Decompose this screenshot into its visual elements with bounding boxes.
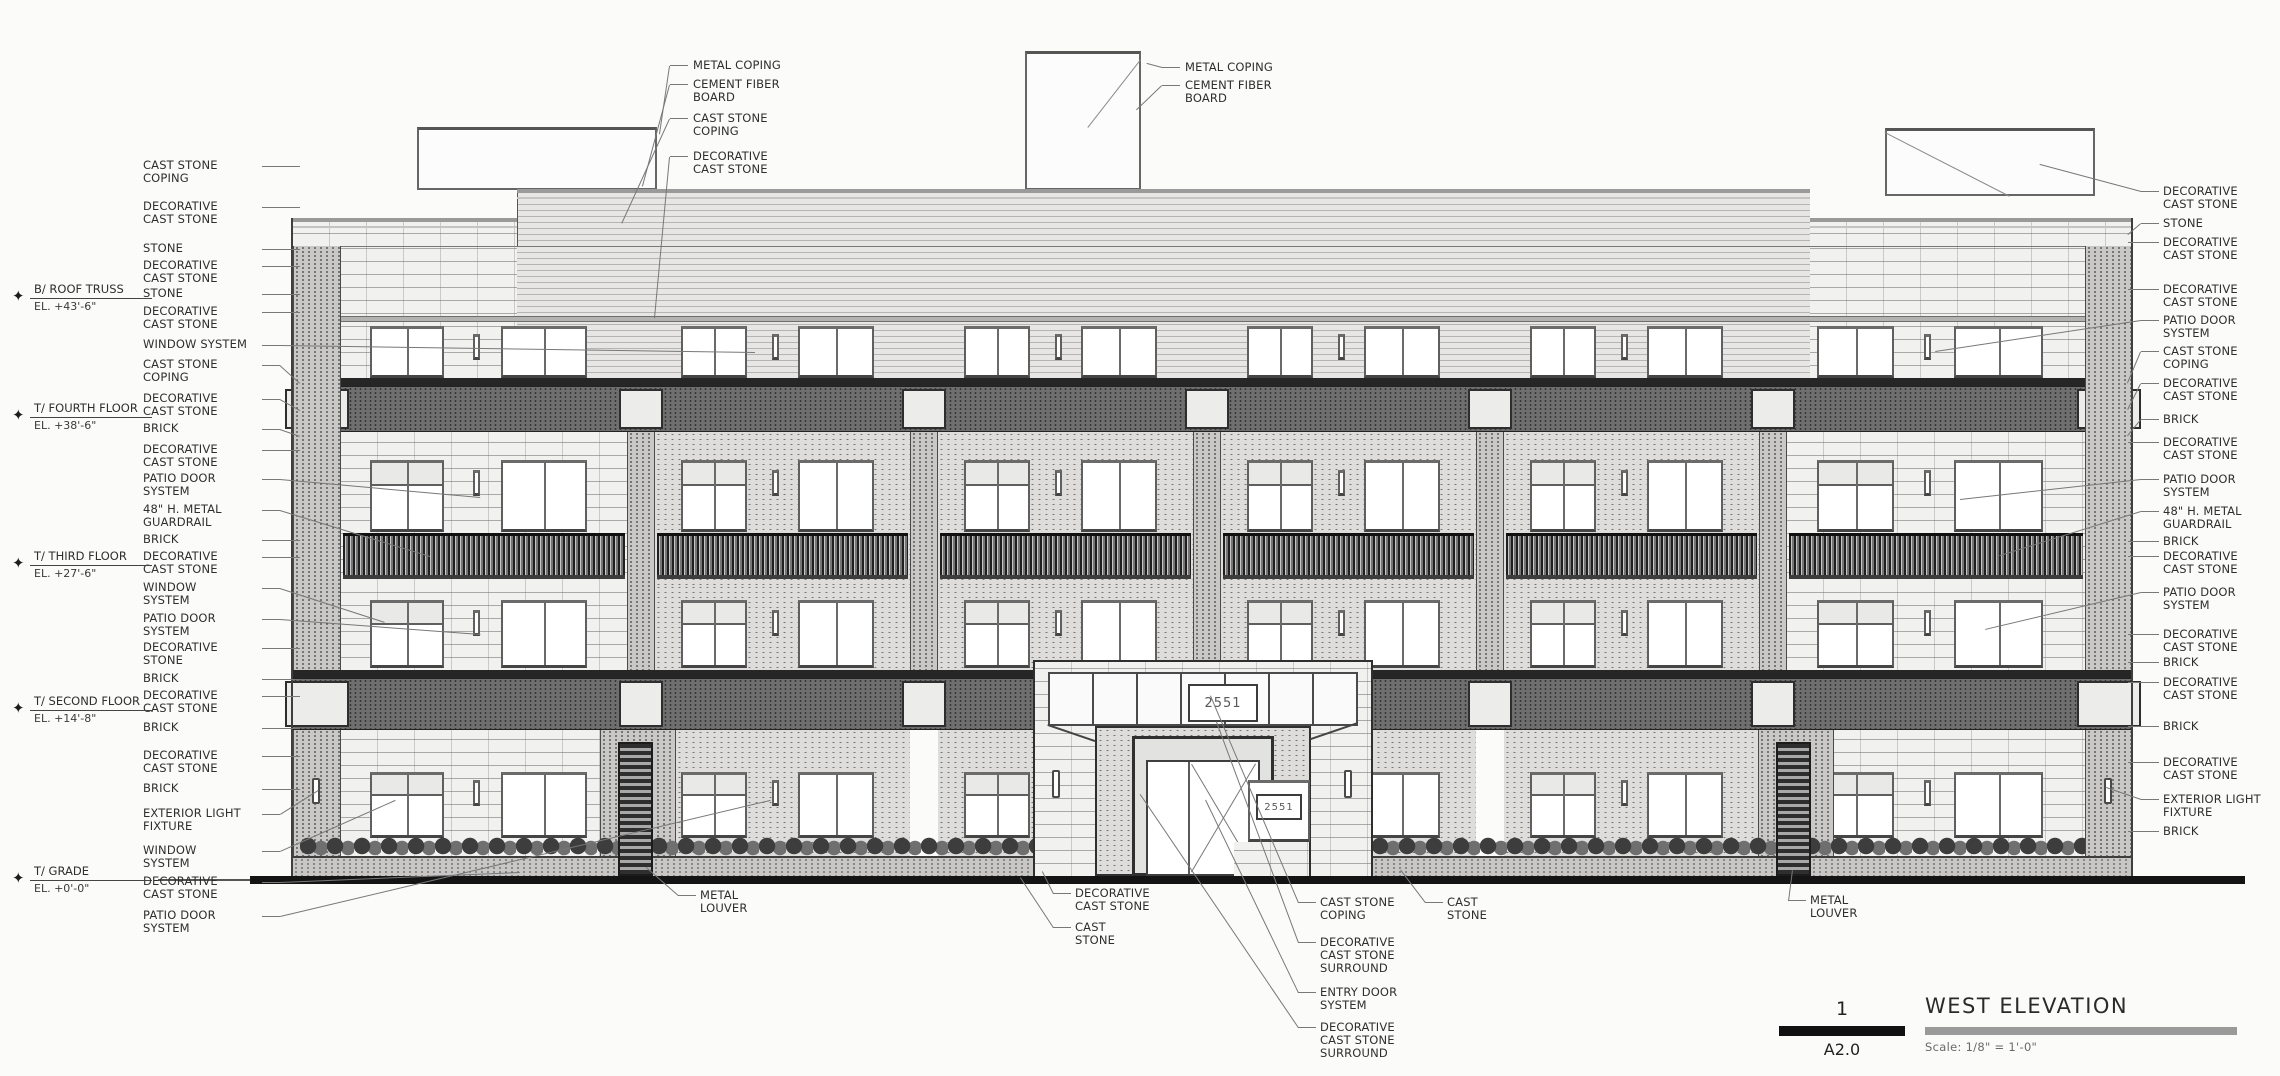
leader-line [2128,662,2141,663]
leader-line [2128,682,2141,683]
callout-label: BRICK [2163,535,2199,548]
callout-label: DECORATIVE CAST STONE [2163,283,2238,309]
elevation-marker-name: B/ ROOF TRUSS [34,283,124,295]
leader-line [262,510,280,511]
window [1364,460,1441,532]
callout-label: DECORATIVE CAST STONE [2163,756,2238,782]
pilaster-block [1468,681,1512,727]
leader-line [2128,831,2141,832]
leader-line [2141,442,2159,443]
callout-label: DECORATIVE CAST STONE [2163,550,2238,576]
leader-line [2141,351,2159,352]
leader-line [280,728,300,729]
shrub-row [300,828,1035,860]
grade-line [250,876,2245,884]
window [1530,600,1596,668]
leader-line [1788,900,1806,901]
roof-truss-line [293,246,2133,247]
drawing-scale: Scale: 1/8" = 1'-0" [1925,1040,2037,1054]
window [798,600,875,668]
leader-line [262,679,280,680]
window [501,600,587,668]
window [1364,600,1441,668]
callout-label: DECORATIVE CAST STONE [143,259,218,285]
window-slit [772,334,779,360]
leader-line [262,648,280,649]
window-slit [1055,470,1062,496]
elevation-marker-elevation: EL. +14'-8" [34,713,96,725]
callout-label: METAL LOUVER [700,889,748,915]
leader-line [1298,902,1316,903]
callout-label: DECORATIVE CAST STONE [2163,236,2238,262]
metal-coping [293,218,517,222]
leader-line [280,312,300,313]
window-slit [1924,610,1931,636]
leader-line [2141,541,2159,542]
callout-label: CEMENT FIBER BOARD [1185,79,1272,105]
window-slit [1621,780,1628,806]
leader-line [280,679,300,680]
leader-line [262,399,280,400]
leader-line [670,118,688,119]
window [1247,326,1313,378]
building-edge [292,218,294,876]
callout-label: PATIO DOOR SYSTEM [143,909,216,935]
window [1081,600,1158,668]
callout-label: PATIO DOOR SYSTEM [143,472,216,498]
metal-guardrail [657,533,908,579]
window-slit [1338,610,1345,636]
leader-line [670,65,688,66]
leader-line [670,84,688,85]
callout-label: CAST STONE COPING [1320,896,1395,922]
window [964,600,1030,668]
leader-line [2141,762,2159,763]
callout-label: DECORATIVE CAST STONE [2163,628,2238,654]
callout-label: DECORATIVE CAST STONE SURROUND [1320,936,1395,975]
window [681,460,747,532]
elevation-marker-icon: ✦ [12,871,25,886]
leader-line [280,696,300,697]
window-slit [1924,334,1931,360]
metal-guardrail [940,533,1191,579]
callout-label: WINDOW SYSTEM [143,844,197,870]
callout-label: 48" H. METAL GUARDRAIL [2163,505,2242,531]
leader-line [2141,419,2159,420]
leader-line [262,345,280,346]
callout-label: BRICK [143,782,179,795]
window [1247,460,1313,532]
elevation-marker-icon: ✦ [12,556,25,571]
leader-line [2128,289,2141,290]
sheet-number: A2.0 [1800,1040,1884,1059]
callout-label: DECORATIVE CAST STONE [143,749,218,775]
pilaster-block [619,389,663,429]
leader-line [280,648,300,649]
exterior-light-fixture [2104,778,2112,804]
cast-stone-coping [293,226,517,228]
leader-line [1162,67,1180,68]
leader-line [2128,556,2141,557]
leader-line [280,166,300,167]
pilaster-block [1751,389,1795,429]
callout-label: DECORATIVE CAST STONE [143,443,218,469]
window-slit [1621,610,1628,636]
leader-line [1425,902,1443,903]
door-mullion [1188,762,1190,874]
elevation-marker-elevation: EL. +38'-6" [34,420,96,432]
window-slit [1621,334,1628,360]
leader-line [262,450,280,451]
title-block-divider [1779,1026,1905,1036]
callout-label: METAL COPING [693,59,781,72]
window-slit [772,780,779,806]
callout-label: CAST STONE COPING [143,159,218,185]
window [1530,326,1596,378]
leader-line [262,540,280,541]
callout-label: BRICK [143,422,179,435]
cast-stone-coping-line [293,378,2133,386]
window [370,326,444,378]
metal-louver [1776,742,1811,876]
window [370,600,444,668]
leader-line [262,294,280,295]
title-underline [1925,1027,2237,1035]
window [1247,600,1313,668]
cast-stone-coping [517,197,1810,199]
window [1817,460,1894,532]
callout-label: EXTERIOR LIGHT FIXTURE [2163,793,2261,819]
leader-line [262,266,280,267]
exterior-light-fixture [1052,770,1060,798]
leader-line [262,312,280,313]
leader-line [280,294,300,295]
pilaster-block [285,681,349,727]
rooftop-structure [1025,51,1141,190]
callout-label: ENTRY DOOR SYSTEM [1320,986,1397,1012]
leader-line [280,540,300,541]
leader-line [1147,63,1162,68]
callout-label: CAST STONE [1075,921,1115,947]
callout-label: CAST STONE [1447,896,1487,922]
window-slit [473,610,480,636]
metal-coping [1810,218,2133,222]
leader-line [2128,762,2141,763]
callout-label: CAST STONE COPING [143,358,218,384]
leader-line [262,696,280,697]
leader-line [280,557,300,558]
leader-line [280,756,300,757]
callout-label: PATIO DOOR SYSTEM [2163,314,2236,340]
callout-label: 48" H. METAL GUARDRAIL [143,503,222,529]
leader-line [262,619,280,620]
callout-label: PATIO DOOR SYSTEM [2163,586,2236,612]
callout-label: DECORATIVE CAST STONE [143,392,218,418]
window [1817,326,1894,378]
pilaster-block [619,681,663,727]
callout-label: DECORATIVE CAST STONE [2163,377,2238,403]
pilaster-block [1751,681,1795,727]
window-slit [772,610,779,636]
window [501,326,587,378]
window-slit [772,470,779,496]
window [1530,460,1596,532]
callout-label: BRICK [2163,825,2199,838]
window [1364,326,1441,378]
leader-line [262,814,280,815]
window [1954,326,2043,378]
window [1817,600,1894,668]
elevation-marker-name: T/ SECOND FLOOR [34,695,140,707]
leader-line [262,851,280,852]
window-slit [1924,470,1931,496]
callout-label: BRICK [143,721,179,734]
callout-label: DECORATIVE CAST STONE [2163,436,2238,462]
elevation-marker-name: T/ THIRD FLOOR [34,550,127,562]
callout-label: WINDOW SYSTEM [143,338,247,351]
callout-label: DECORATIVE CAST STONE [2163,185,2238,211]
decorative-cast-stone-band [293,316,2133,322]
window [798,326,875,378]
leader-line [262,789,280,790]
window [1647,600,1724,668]
pilaster-block [1468,389,1512,429]
callout-label: STONE [2163,217,2203,230]
leader-line [262,756,280,757]
leader-line [262,365,280,366]
leader-line [2141,682,2159,683]
leader-line [1053,927,1071,928]
window-slit [1055,610,1062,636]
elevation-marker-icon: ✦ [12,289,25,304]
elevation-marker-elevation: EL. +27'-6" [34,568,96,580]
window-sign: 2551 [1256,794,1302,820]
metal-guardrail [1506,533,1757,579]
metal-guardrail [1789,533,2083,579]
window [1647,460,1724,532]
callout-label: BRICK [143,672,179,685]
window-slit [1055,334,1062,360]
window-slit [1621,470,1628,496]
callout-label: DECORATIVE CAST STONE [143,200,218,226]
callout-label: METAL COPING [1185,61,1273,74]
leader-line [2128,634,2141,635]
leader-line [2141,726,2159,727]
window-slit [1924,780,1931,806]
leader-line [2141,479,2159,480]
callout-label: DECORATIVE CAST STONE [143,875,218,901]
elevation-marker-icon: ✦ [12,701,25,716]
callout-label: BRICK [2163,413,2199,426]
pilaster-block [902,389,946,429]
elevation-marker-icon: ✦ [12,408,25,423]
window [964,326,1030,378]
leader-line [1053,893,1071,894]
window [964,460,1030,532]
callout-label: CAST STONE COPING [2163,345,2238,371]
leader-line [2141,799,2159,800]
callout-label: DECORATIVE CAST STONE SURROUND [1320,1021,1395,1060]
leader-line [2141,191,2159,192]
leader-line [670,156,688,157]
window-slit [1338,334,1345,360]
leader-line [262,882,280,883]
leader-line [2128,242,2141,243]
callout-label: DECORATIVE CAST STONE [143,689,218,715]
leader-line [262,557,280,558]
callout-label: EXTERIOR LIGHT FIXTURE [143,807,241,833]
callout-label: CEMENT FIBER BOARD [693,78,780,104]
callout-label: BRICK [2163,656,2199,669]
metal-louver [618,742,653,876]
elevation-drawing-canvas: 1 A2.0 WEST ELEVATION Scale: 1/8" = 1'-0… [0,0,2280,1076]
leader-line [678,895,696,896]
callout-label: BRICK [143,533,179,546]
leader-line [262,588,280,589]
leader-line [2128,726,2141,727]
window [370,460,444,532]
callout-label: DECORATIVE CAST STONE [2163,676,2238,702]
leader-line [280,207,300,208]
elevation-marker-elevation: EL. +0'-0" [34,883,89,895]
leader-line [2141,634,2159,635]
callout-label: PATIO DOOR SYSTEM [143,612,216,638]
cast-stone-coping [1810,226,2133,228]
leader-line [1162,85,1180,86]
leader-line [1298,1027,1316,1028]
leader-line [2141,831,2159,832]
callout-label: DECORATIVE CAST STONE [143,550,218,576]
leader-line [280,450,300,451]
exterior-light-fixture [1344,770,1352,798]
leader-line [2141,289,2159,290]
elevation-marker-name: T/ GRADE [34,865,89,877]
callout-label: DECORATIVE CAST STONE [1075,887,1150,913]
pilaster-block [902,681,946,727]
window [1954,600,2043,668]
leader-line [2141,662,2159,663]
elevation-marker-name: T/ FOURTH FLOOR [34,402,138,414]
callout-label: WINDOW SYSTEM [143,581,197,607]
wing-parapet [293,218,517,246]
wing-parapet [1810,218,2133,246]
leader-line [2128,541,2141,542]
detail-number: 1 [1800,998,1884,1020]
leader-line [1298,992,1316,993]
rooftop-structure [417,127,657,190]
leader-line [262,429,280,430]
callout-label: PATIO DOOR SYSTEM [2163,473,2236,499]
window-slit [473,780,480,806]
leader-line [262,207,280,208]
window [1081,326,1158,378]
window-slit [1338,470,1345,496]
leader-line [280,249,300,250]
leader-line [2141,383,2159,384]
window-slit [473,470,480,496]
leader-line [2141,242,2159,243]
callout-label: DECORATIVE CAST STONE [143,305,218,331]
callout-label: STONE [143,242,183,255]
leader-line [280,266,300,267]
elevation-marker-elevation: EL. +43'-6" [34,301,96,313]
window [1081,460,1158,532]
address-plaque: 2551 [1188,684,1258,722]
leader-line [262,249,280,250]
leader-line [2141,223,2159,224]
leader-line [2128,442,2141,443]
leader-line [2141,592,2159,593]
drawing-title: WEST ELEVATION [1925,994,2128,1018]
window [798,460,875,532]
leader-line [262,916,280,917]
leader-line [280,789,300,790]
metal-coping [517,189,1810,193]
callout-label: METAL LOUVER [1810,894,1858,920]
window [1954,460,2043,532]
window [501,460,587,532]
metal-guardrail [343,533,625,579]
callout-label: CAST STONE COPING [693,112,768,138]
shrub-row [1372,828,2085,860]
leader-line [262,166,280,167]
leader-line [2141,511,2159,512]
building-edge [2132,218,2134,876]
leader-line [1298,942,1316,943]
metal-guardrail [1223,533,1474,579]
window [1647,326,1724,378]
callout-label: BRICK [2163,720,2199,733]
callout-label: DECORATIVE STONE [143,641,218,667]
leader-line [262,479,280,480]
leader-line [2141,556,2159,557]
pilaster-block [1185,389,1229,429]
leader-line [262,728,280,729]
leader-line [2141,320,2159,321]
callout-label: DECORATIVE CAST STONE [693,150,768,176]
window [681,600,747,668]
